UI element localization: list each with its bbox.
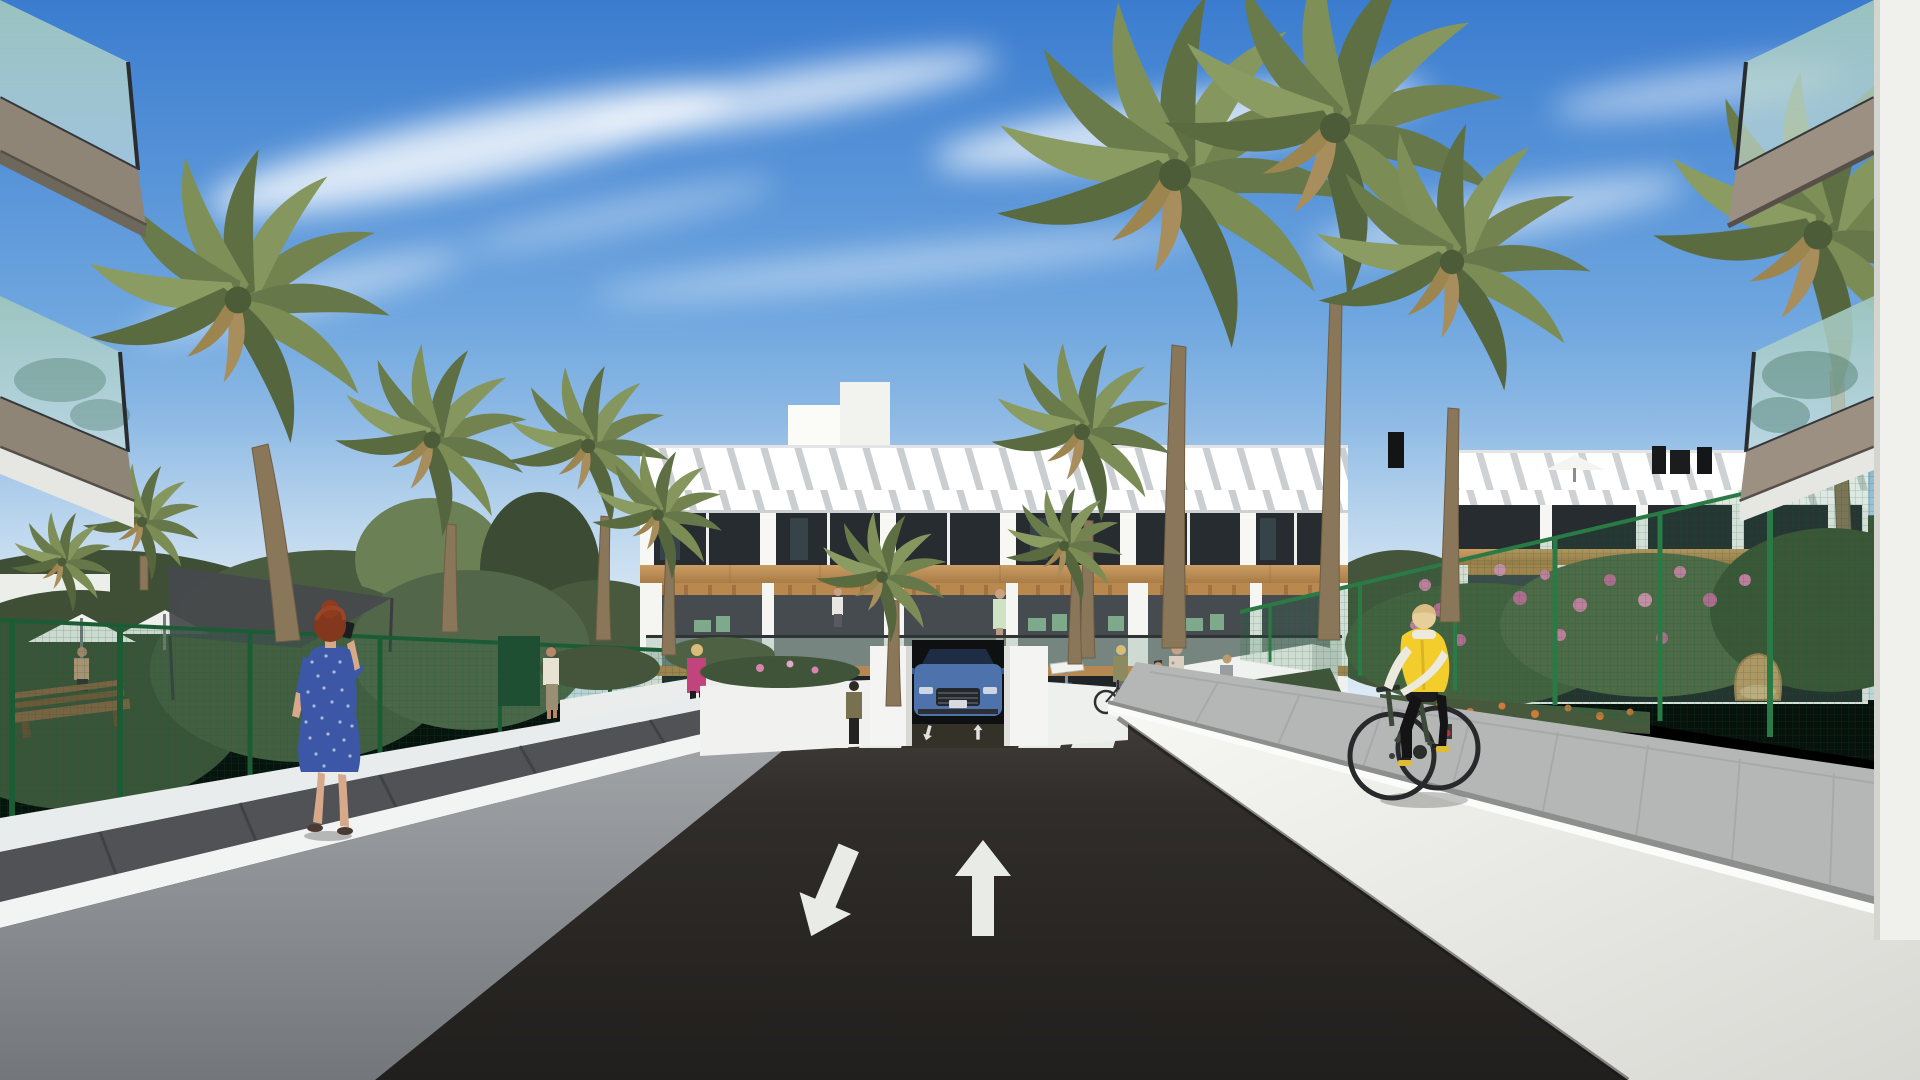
corner-column <box>1874 0 1920 940</box>
rendered-scene <box>0 0 1920 1080</box>
scene-canvas <box>0 0 1920 1080</box>
